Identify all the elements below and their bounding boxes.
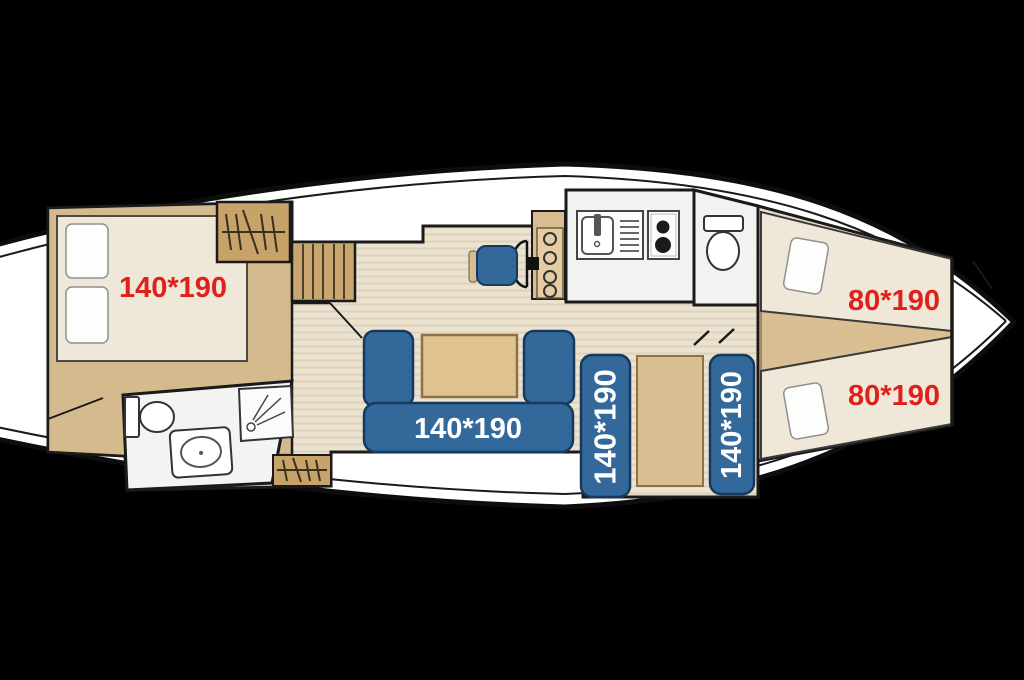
gauge-icon bbox=[544, 252, 556, 264]
label-bow-berth-lower: 80*190 bbox=[848, 380, 940, 412]
sofa-left-seat bbox=[364, 331, 413, 406]
locker-icon bbox=[273, 455, 331, 486]
mid-cabin-floor bbox=[637, 356, 703, 486]
label-mid-berth-right: 140*190 bbox=[716, 371, 748, 479]
toilet-icon bbox=[704, 216, 743, 270]
gauge-icon bbox=[544, 271, 556, 283]
label-aft-double-bed: 140*190 bbox=[119, 272, 227, 304]
wardrobe-icon bbox=[217, 202, 290, 262]
pillow bbox=[66, 224, 108, 278]
burner-icon bbox=[657, 221, 670, 234]
aft-bathroom bbox=[123, 381, 293, 490]
floorplan-svg: 140*190 bbox=[0, 0, 1024, 680]
pillow bbox=[66, 287, 108, 343]
label-bow-berth-upper: 80*190 bbox=[848, 285, 940, 317]
stairs bbox=[292, 242, 355, 301]
helm-seat-back bbox=[469, 251, 477, 282]
faucet-icon bbox=[594, 214, 601, 236]
fore-wc bbox=[694, 190, 758, 305]
burner-icon bbox=[655, 237, 671, 253]
label-salon-sofa-bed: 140*190 bbox=[414, 413, 522, 445]
washbasin-icon bbox=[169, 427, 232, 478]
boat-floorplan-canvas: 140*190 bbox=[0, 0, 1024, 680]
gauge-icon bbox=[544, 285, 556, 297]
galley bbox=[566, 190, 694, 302]
sofa-right-seat bbox=[524, 331, 574, 404]
label-mid-berth-left: 140*190 bbox=[588, 369, 623, 485]
gauge-icon bbox=[544, 233, 556, 245]
shower-icon bbox=[239, 386, 293, 441]
pillow bbox=[783, 237, 829, 295]
helm-seat bbox=[477, 246, 517, 285]
pillow bbox=[783, 382, 829, 440]
salon-table bbox=[422, 335, 517, 397]
salon: 140*190 bbox=[364, 331, 574, 452]
